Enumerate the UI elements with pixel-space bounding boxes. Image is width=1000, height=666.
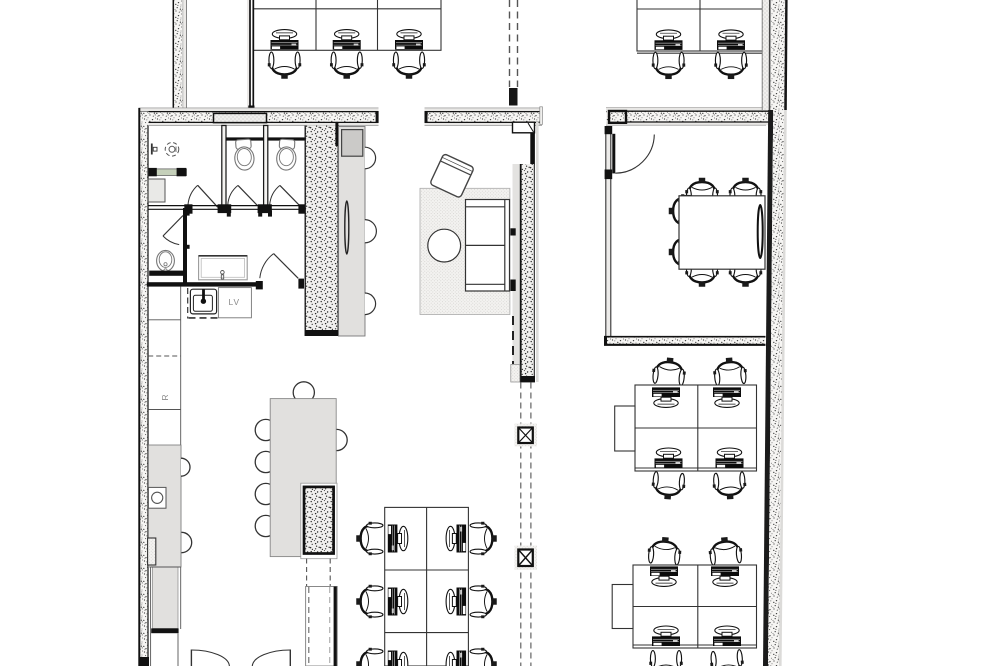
svg-text:LV: LV bbox=[229, 297, 241, 307]
svg-text:R: R bbox=[160, 394, 170, 400]
